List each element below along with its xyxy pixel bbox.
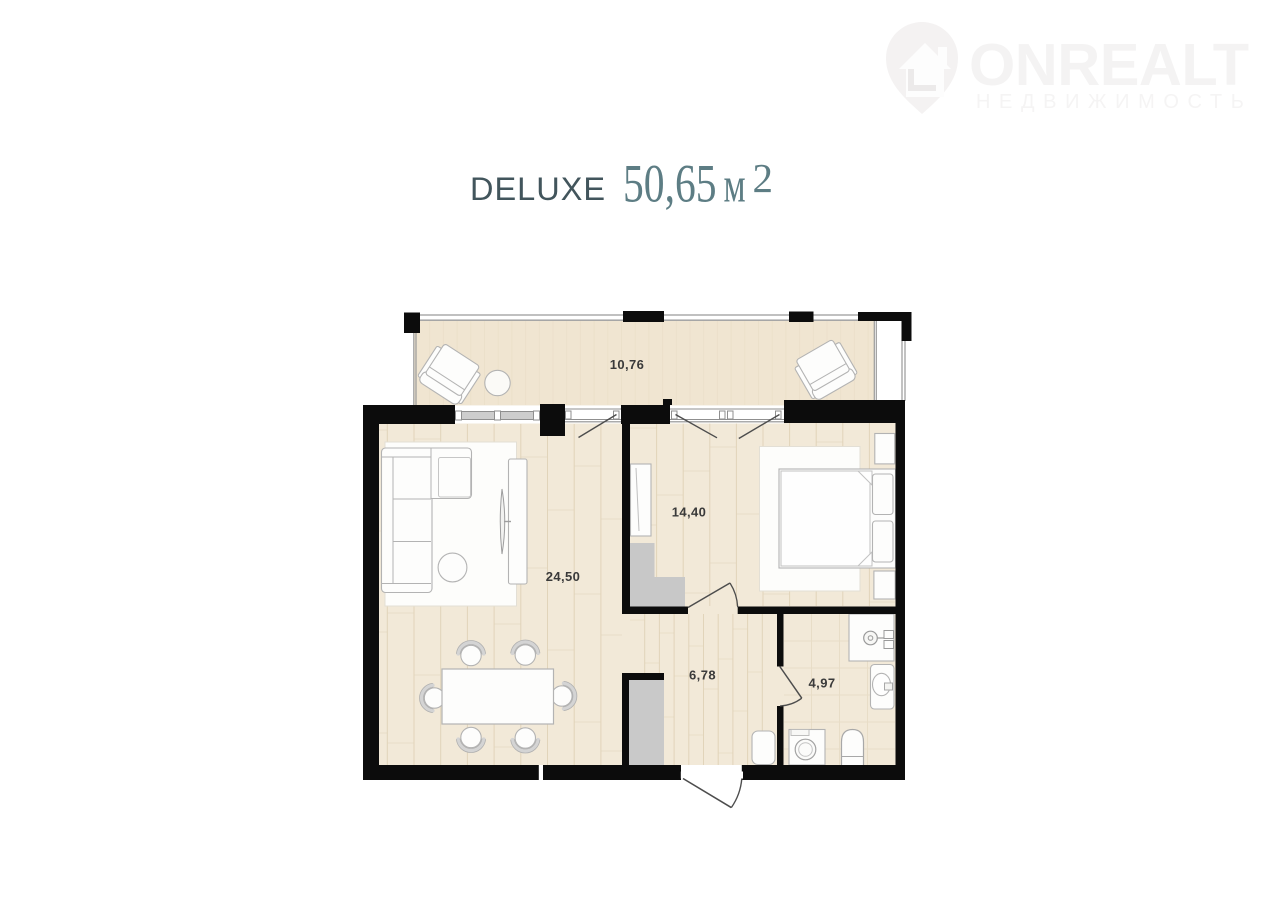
- svg-text:4,97: 4,97: [809, 676, 836, 691]
- svg-text:ONREALT: ONREALT: [969, 31, 1249, 98]
- svg-text:6,78: 6,78: [689, 668, 716, 683]
- svg-text:24,50: 24,50: [546, 569, 581, 584]
- svg-text:DELUXE: DELUXE: [470, 171, 606, 207]
- svg-text:50,65: 50,65: [623, 154, 717, 213]
- svg-text:НЕДВИЖИМОСТЬ: НЕДВИЖИМОСТЬ: [976, 91, 1252, 113]
- svg-text:2: 2: [753, 155, 774, 201]
- svg-text:10,76: 10,76: [610, 357, 645, 372]
- svg-text:14,40: 14,40: [672, 505, 707, 520]
- svg-text:м: м: [724, 159, 746, 213]
